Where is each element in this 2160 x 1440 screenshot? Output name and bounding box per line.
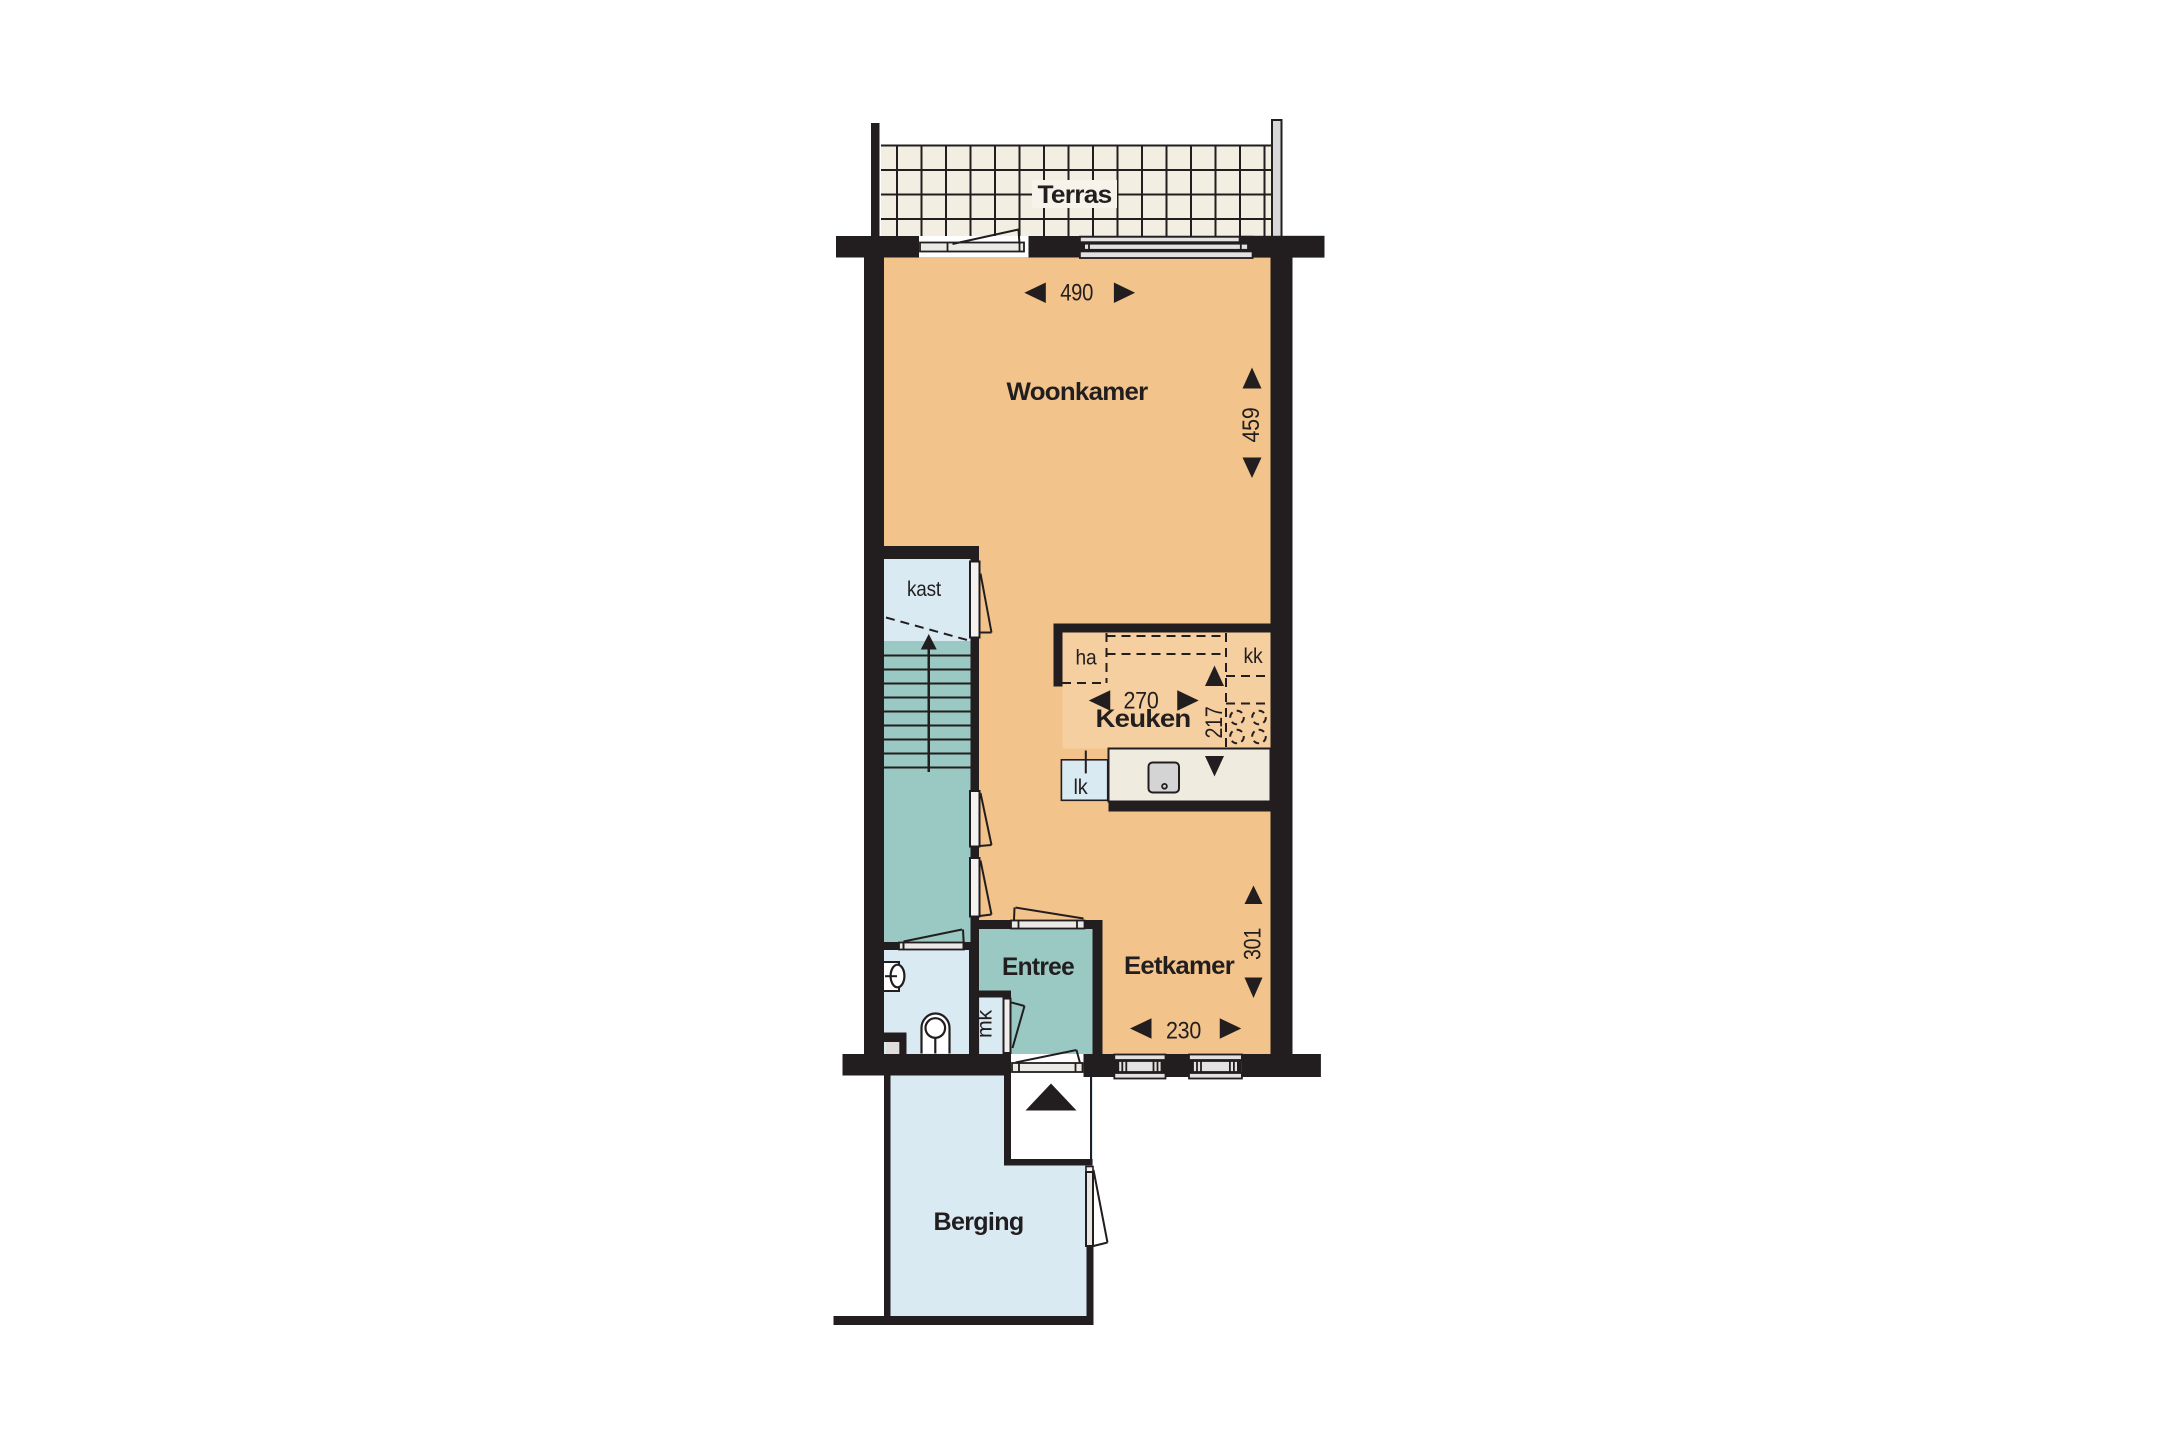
- svg-text:Terras: Terras: [1038, 181, 1112, 209]
- svg-text:kk: kk: [1244, 645, 1264, 668]
- svg-text:mk: mk: [974, 1009, 997, 1038]
- svg-text:490: 490: [1060, 280, 1093, 307]
- svg-text:lk: lk: [1074, 776, 1089, 799]
- svg-text:217: 217: [1201, 707, 1228, 739]
- svg-text:ha: ha: [1076, 647, 1097, 670]
- svg-text:Entree: Entree: [1002, 953, 1075, 981]
- svg-text:Eetkamer: Eetkamer: [1124, 952, 1235, 980]
- svg-text:270: 270: [1124, 688, 1159, 715]
- svg-text:459: 459: [1238, 408, 1265, 443]
- svg-text:Berging: Berging: [934, 1208, 1024, 1236]
- svg-text:kast: kast: [907, 578, 941, 601]
- svg-text:Woonkamer: Woonkamer: [1007, 378, 1149, 406]
- svg-text:230: 230: [1166, 1018, 1201, 1045]
- svg-text:301: 301: [1240, 928, 1267, 960]
